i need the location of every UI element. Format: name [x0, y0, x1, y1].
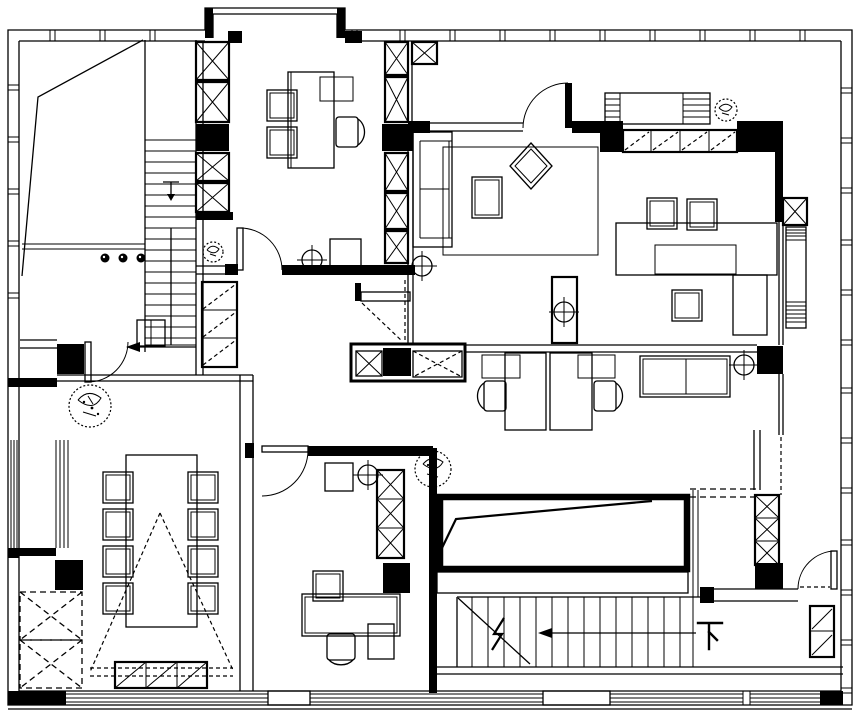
se-cabinet — [810, 606, 834, 657]
window-ticks-left — [8, 85, 19, 298]
coffee-table — [472, 177, 502, 218]
meeting-chair — [188, 583, 218, 614]
meeting-chair — [188, 546, 218, 577]
stair-up-mark — [163, 182, 179, 201]
stair-direction-arrow-lower — [538, 628, 696, 638]
office-sofa — [640, 356, 730, 397]
meeting-chair — [103, 546, 133, 577]
dining-chair — [647, 198, 677, 229]
duct-column — [549, 277, 579, 343]
interior-walls — [8, 40, 830, 693]
break-line — [492, 618, 504, 650]
credenza — [115, 662, 207, 688]
lower-staircase — [437, 597, 843, 674]
desk-chair-right — [594, 381, 623, 411]
window-ticks-top — [50, 30, 805, 41]
dining-table — [616, 223, 777, 275]
executive-desk — [288, 72, 334, 168]
plant-small-east — [715, 99, 737, 121]
sofa — [413, 132, 452, 247]
corridor-x-box — [412, 42, 437, 64]
survey-mark — [729, 350, 759, 380]
desk-return-left — [482, 355, 520, 378]
floor-plan-svg — [0, 0, 860, 712]
workstation-right — [550, 353, 592, 430]
desk-return-right — [578, 355, 615, 378]
meeting-chair — [188, 509, 218, 540]
office-door — [237, 228, 282, 270]
plant-small — [203, 242, 223, 262]
meeting-room — [20, 455, 233, 688]
south-office-door — [262, 446, 308, 496]
wall-cabinet — [330, 239, 361, 266]
column-hall-west — [57, 344, 84, 374]
meeting-table — [126, 455, 197, 627]
storage-block-center — [351, 344, 465, 381]
wardrobe-north — [623, 130, 737, 152]
wall-cabinet — [325, 463, 353, 491]
dashed-storage-boxes — [20, 592, 82, 688]
dining-chair — [672, 290, 702, 321]
window-ticks-right — [841, 88, 852, 693]
hall-shelf — [355, 280, 410, 343]
desk-chair-south — [327, 634, 355, 665]
column-meeting-sw — [55, 560, 83, 590]
terrace-slope-line — [22, 40, 143, 276]
column-south — [383, 563, 410, 593]
dining-chair — [687, 199, 717, 230]
column-east-mid — [757, 346, 783, 374]
desk-chair-left — [477, 381, 506, 411]
survey-mark — [407, 251, 437, 281]
window-sill-left — [11, 440, 17, 552]
handrail — [22, 244, 145, 249]
survey-mark — [353, 460, 383, 490]
landing-strip — [437, 572, 688, 593]
cabinet-column-west — [196, 42, 229, 212]
south-office — [262, 446, 451, 665]
dining-set — [616, 198, 777, 335]
mobile-pedestal — [368, 624, 394, 659]
upper-staircase — [22, 40, 196, 352]
workstation-left — [505, 353, 546, 430]
stair-down-label — [698, 623, 722, 649]
cabinet-column-se — [755, 495, 779, 565]
desk-side-table — [320, 77, 353, 101]
floor-plan-page: 下 — [0, 0, 860, 712]
bench — [733, 275, 767, 335]
corridor-door — [523, 83, 572, 128]
newel-dots — [101, 254, 146, 263]
plant-large — [69, 385, 111, 427]
se-door — [798, 551, 837, 589]
sideboard — [605, 93, 710, 124]
north-office — [203, 72, 365, 275]
decor-diamond-table — [510, 143, 552, 189]
slope-line — [441, 501, 652, 550]
meeting-chair — [103, 472, 133, 503]
rug — [443, 147, 598, 255]
hall-door — [85, 342, 128, 382]
meeting-chair — [188, 472, 218, 503]
window-sill-bottom — [8, 691, 843, 705]
guest-chair — [267, 90, 297, 121]
corridor-cabinet-east — [783, 198, 807, 328]
cabinet-column-south — [377, 470, 404, 558]
open-office — [477, 353, 730, 430]
column-se — [755, 563, 783, 589]
bay-window — [205, 8, 362, 43]
ramp-void — [437, 490, 698, 597]
guest-chair — [267, 127, 297, 158]
hall-wardrobe — [202, 282, 237, 367]
cabinet-column-east — [382, 42, 413, 263]
meeting-chair — [103, 509, 133, 540]
stair-diagonal — [458, 598, 530, 664]
office-chair — [336, 117, 365, 147]
